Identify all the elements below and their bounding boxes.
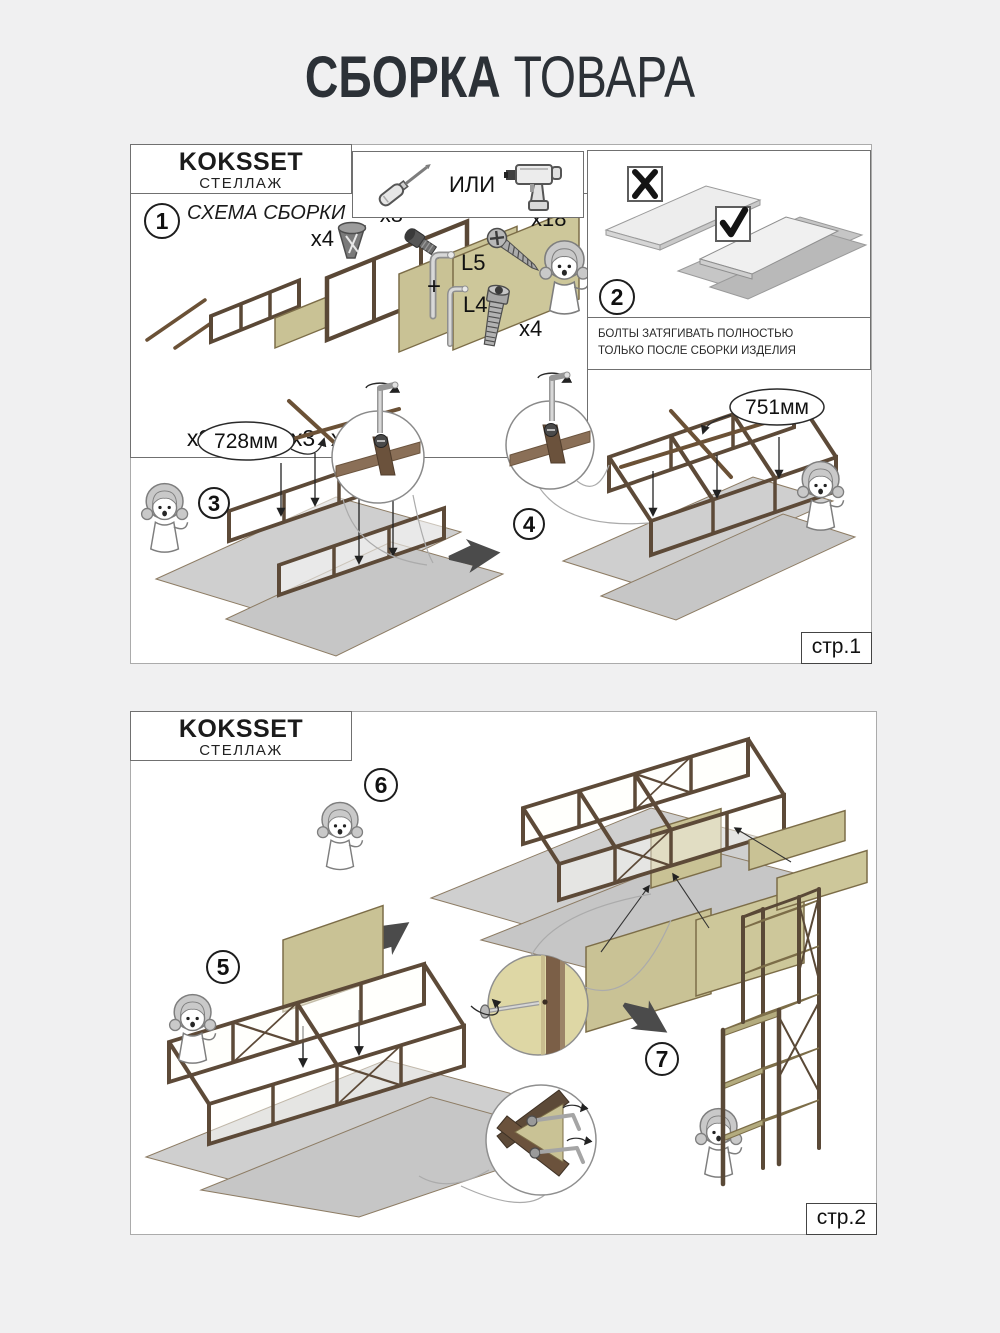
instruction-sheet-1: KOKSSET СТЕЛЛАЖ ИЛИ [130, 144, 872, 664]
brand-product-type: СТЕЛЛАЖ [131, 175, 351, 192]
instruction-sheet-2: 6 [130, 711, 877, 1235]
step1-heading: СХЕМА СБОРКИ [187, 202, 345, 225]
key-l4-label: L4 [463, 292, 487, 317]
step6-number: 6 [375, 772, 388, 798]
step3-dim-balloon: 728мм [198, 422, 324, 460]
page-title-bold: СБОРКА [305, 45, 501, 110]
brand-box-2: KOKSSET СТЕЛЛАЖ [130, 711, 352, 761]
step4-dim-label: 751мм [745, 396, 809, 419]
big-bolt-qty-label: x4 [519, 316, 542, 341]
mascot-girl [798, 462, 844, 531]
step4-number-circle: 4 [514, 509, 544, 539]
steps-3-4-area: 728мм 3 [131, 369, 871, 663]
key-l5-label: L5 [461, 250, 485, 275]
page1-label: стр.1 [801, 632, 872, 664]
step1-number: 1 [144, 203, 180, 239]
brand-name: KOKSSET [131, 149, 351, 175]
step4-number: 4 [523, 512, 536, 537]
step7-number: 7 [656, 1046, 669, 1072]
drill-icon [503, 155, 569, 215]
step2-number: 2 [599, 279, 635, 315]
brand-name: KOKSSET [131, 716, 351, 742]
assembly-instructions-page: СБОРКА ТОВАРА KOKSSET СТЕЛЛАЖ ИЛИ [0, 0, 1000, 1333]
step4-magnifier-inset [506, 372, 649, 524]
steps-3-4-illustration: 728мм 3 [131, 369, 871, 663]
plus-label: + [427, 273, 441, 300]
note-box: БОЛТЫ ЗАТЯГИВАТЬ ПОЛНОСТЬЮ ТОЛЬКО ПОСЛЕ … [587, 317, 871, 370]
screwdriver-icon [367, 157, 441, 213]
page2-label: стр.2 [806, 1203, 877, 1235]
step3-dim-label: 728мм [214, 430, 278, 453]
step3-number: 3 [208, 491, 220, 516]
step5-number: 5 [217, 954, 230, 980]
checkbox-x-icon [628, 167, 662, 201]
tools-box: ИЛИ [352, 151, 584, 218]
or-label: ИЛИ [449, 172, 495, 198]
page-title-light: ТОВАРА [514, 45, 696, 110]
brand-product-type: СТЕЛЛАЖ [131, 742, 351, 759]
page-title: СБОРКА ТОВАРА [100, 44, 900, 111]
step2-box: 2 [587, 150, 871, 318]
mascot-girl [142, 484, 188, 553]
note-line-2: ТОЛЬКО ПОСЛЕ СБОРКИ ИЗДЕЛИЯ [598, 343, 860, 360]
mascot-girl [696, 1109, 742, 1178]
step7-number-circle: 7 [646, 1043, 678, 1075]
mascot-girl [318, 803, 363, 870]
brand-box-1: KOKSSET СТЕЛЛАЖ [130, 144, 352, 194]
note-line-1: БОЛТЫ ЗАТЯГИВАТЬ ПОЛНОСТЬЮ [598, 326, 860, 343]
foot-qty-label: x4 [311, 226, 334, 251]
foot-cone-icon [339, 223, 366, 259]
step6-number-circle: 6 [365, 769, 397, 801]
steps-5-6-7-illustration: 6 [131, 712, 874, 1232]
step3-number-circle: 3 [199, 488, 229, 518]
step5-number-circle: 5 [207, 951, 239, 983]
checkbox-check-icon [716, 207, 750, 241]
step4-dim-balloon: 751мм [703, 389, 824, 433]
